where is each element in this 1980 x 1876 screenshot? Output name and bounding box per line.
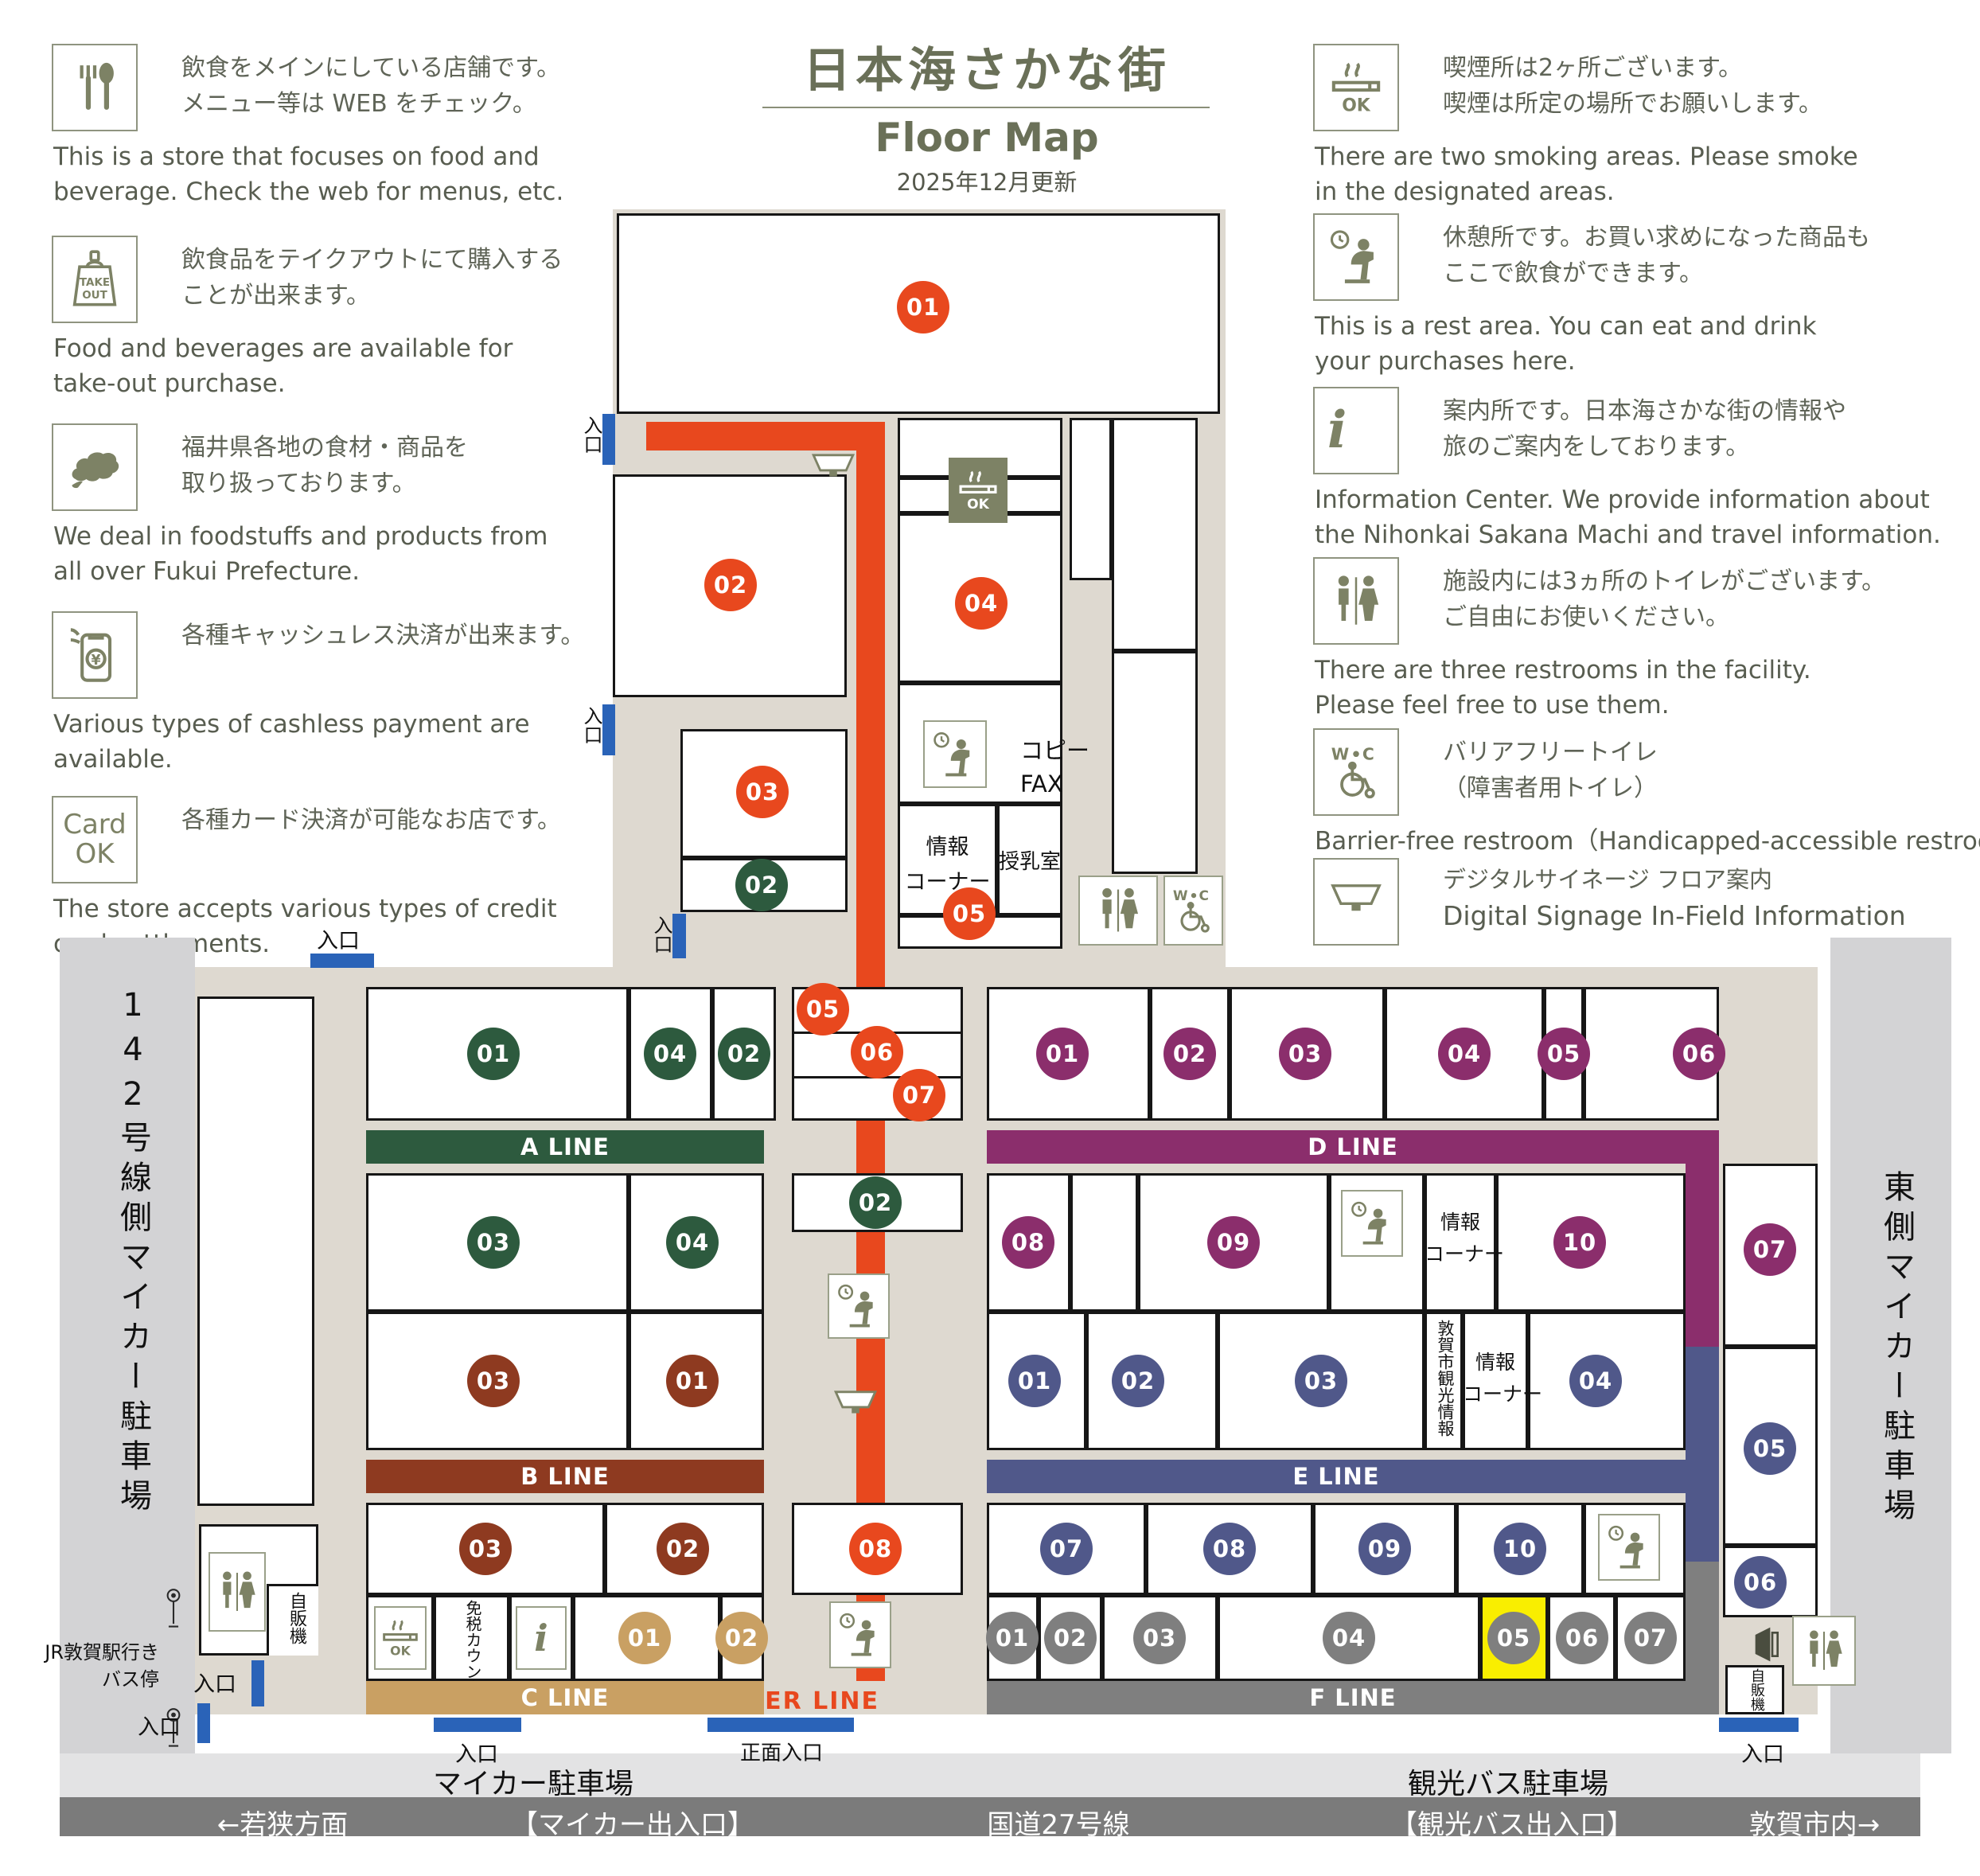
smoking-icon: OK xyxy=(1313,44,1399,131)
info-corner-label: 情報 xyxy=(1425,1207,1496,1235)
stall-center-06: 06 xyxy=(851,1026,903,1078)
legend-text-jp: 飲食品をテイクアウトにて購入することが出来ます。 xyxy=(181,242,563,314)
d-line-band xyxy=(1686,1164,1719,1347)
svg-text:OK: OK xyxy=(390,1643,411,1658)
svg-text:C: C xyxy=(1199,887,1208,903)
stall-D-05: 05 xyxy=(1538,1028,1590,1080)
stall-center-08: 08 xyxy=(849,1523,902,1575)
entrance-bar xyxy=(310,954,374,968)
road-bus-gate-label: 【観光バス出入口】 xyxy=(1353,1803,1671,1842)
vending-label: 自販機 xyxy=(283,1592,309,1644)
stall-center-01: 01 xyxy=(897,281,949,333)
wc-icon: WC xyxy=(1313,728,1399,816)
legend-text-en: Food and beverages are available fortake… xyxy=(53,331,513,401)
stall-E-03: 03 xyxy=(1295,1355,1347,1407)
legend-text-jp: 各種カード決済が可能なお店です。 xyxy=(181,802,561,838)
entrance-label: 入口 xyxy=(455,1737,498,1768)
page-title: 日本海さかな街 xyxy=(760,32,1214,101)
svg-text:¥: ¥ xyxy=(92,653,101,669)
stall-D-03: 03 xyxy=(1279,1028,1331,1080)
stall-A-02: 02 xyxy=(849,1176,902,1229)
legend-text-en: There are two smoking areas. Please smok… xyxy=(1315,139,1858,209)
stall-A-02: 02 xyxy=(718,1028,770,1080)
stall-C-01: 01 xyxy=(618,1612,671,1664)
bus-stop-icon xyxy=(163,1588,184,1629)
fork-spoon-icon xyxy=(52,44,138,131)
stall-center-02: 02 xyxy=(704,559,757,611)
stall-C-02: 02 xyxy=(715,1612,768,1664)
line-banner-F: F LINE xyxy=(987,1681,1719,1714)
svg-text:W: W xyxy=(1172,887,1187,903)
stall-F-01: 01 xyxy=(986,1612,1039,1664)
svg-text:C: C xyxy=(1362,744,1374,763)
stall-F-07: 07 xyxy=(1624,1612,1677,1664)
legend-text-jp: 飲食をメインにしている店舗です。メニュー等は WEB をチェック。 xyxy=(181,50,560,122)
legend-text-jp: バリアフリートイレ（障害者用トイレ） xyxy=(1443,735,1658,806)
line-banner-E: E LINE xyxy=(987,1460,1686,1493)
stall-A-02: 02 xyxy=(735,859,788,911)
info-corner-label: 情報 xyxy=(1463,1347,1528,1375)
card-ok-icon: CardOK xyxy=(52,796,138,883)
center-line-path-horizontal xyxy=(646,422,885,450)
entrance-label: 入口 xyxy=(1741,1737,1784,1768)
stall-E-06: 06 xyxy=(1734,1556,1787,1609)
stall-F-06: 06 xyxy=(1556,1612,1608,1664)
stall-center-07: 07 xyxy=(893,1069,945,1121)
main-entrance-bar xyxy=(707,1718,854,1732)
legend-text-jp: 休憩所です。お買い求めになった商品もここで飲食ができます。 xyxy=(1443,220,1870,291)
information-icon: i xyxy=(516,1606,567,1670)
smoking-area-icon: OK xyxy=(374,1606,427,1670)
legend-text-en: This is a rest area. You can eat and dri… xyxy=(1315,309,1817,379)
parking-mycar-label: マイカー駐車場 xyxy=(374,1761,692,1802)
stall-F-05: 05 xyxy=(1487,1612,1540,1664)
road-route27-label: 国道27号線 xyxy=(939,1803,1178,1842)
stall-D-01: 01 xyxy=(1036,1028,1089,1080)
main-entrance-label: 正面入口 xyxy=(702,1737,861,1766)
stall-B-02: 02 xyxy=(657,1523,709,1575)
rest-area-icon xyxy=(923,720,987,788)
stall-center-05: 05 xyxy=(943,887,996,940)
legend-text-jp: 各種キャッシュレス決済が出来ます。 xyxy=(181,618,584,653)
info-icon: i xyxy=(1313,387,1399,474)
legend-text-jp: デジタルサイネージ フロア案内 xyxy=(1443,863,1772,898)
road-tsuruga-label: 敦賀市内→ xyxy=(1695,1803,1934,1842)
stall-D-02: 02 xyxy=(1163,1028,1216,1080)
info-corner-label: コーナー xyxy=(1425,1238,1496,1267)
stall-A-01: 01 xyxy=(467,1028,520,1080)
restroom-icon xyxy=(209,1552,266,1632)
svg-text:OUT: OUT xyxy=(82,290,107,302)
updated-date: 2025年12月更新 xyxy=(760,164,1214,197)
svg-text:OK: OK xyxy=(1342,96,1371,116)
stall-center-04: 04 xyxy=(955,577,1008,630)
stall-D-07: 07 xyxy=(1744,1223,1796,1276)
restroom-icon xyxy=(1078,876,1158,946)
rest-area-icon xyxy=(1341,1190,1403,1257)
page-subtitle: Floor Map xyxy=(760,115,1214,161)
restroom-icon xyxy=(1313,557,1399,645)
f-line-band xyxy=(1686,1562,1719,1681)
restroom-icon xyxy=(1792,1616,1856,1686)
stall-E-07: 07 xyxy=(1040,1523,1093,1575)
tsuruga-info-label: 敦賀市観光情報 xyxy=(1433,1320,1457,1437)
entrance-label: 入口 xyxy=(317,923,360,954)
stall-E-09: 09 xyxy=(1358,1523,1411,1575)
parking-strip-right-label: 東側マイカー駐車場 xyxy=(1873,1170,1920,1528)
legend-text-en: Digital Signage In-Field Information xyxy=(1443,898,1906,935)
stall-A-04: 04 xyxy=(644,1028,696,1080)
entrance-label: 入口 xyxy=(648,915,676,954)
nursing-label: 授乳室 xyxy=(997,845,1062,875)
info-corner-label: コーナー xyxy=(1463,1379,1528,1407)
digital-signage-icon xyxy=(804,452,863,486)
fukui-map-icon xyxy=(52,423,138,511)
stall-E-01: 01 xyxy=(1008,1355,1061,1407)
entrance-bar xyxy=(197,1703,210,1743)
svg-text:W: W xyxy=(1331,744,1349,763)
legend-text-en: Barrier-free restroom（Handicapped-access… xyxy=(1315,824,1980,859)
rest-area-icon xyxy=(828,1273,890,1339)
bus-stop-label: バス停 xyxy=(16,1663,159,1691)
stall-D-09: 09 xyxy=(1207,1216,1260,1269)
signage-icon xyxy=(1313,858,1399,946)
digital-signage-icon xyxy=(826,1389,885,1422)
rest-icon xyxy=(1313,213,1399,301)
entrance-label: 入口 xyxy=(578,706,606,744)
stall-E-10: 10 xyxy=(1494,1523,1546,1575)
entrance-label: 入口 xyxy=(578,415,606,454)
door-icon xyxy=(1749,1625,1783,1663)
accessible-restroom-icon: WC xyxy=(1163,876,1223,946)
bus-stop-label: JR敦賀駅行き xyxy=(16,1636,159,1664)
entrance-label: 入口 xyxy=(138,1710,181,1741)
stall-center-05: 05 xyxy=(797,983,849,1036)
stall-center-03: 03 xyxy=(736,766,789,818)
rest-area-icon xyxy=(1598,1514,1660,1581)
stall-D-06: 06 xyxy=(1673,1028,1725,1080)
line-banner-B: B LINE xyxy=(366,1460,764,1493)
legend-text-en: We deal in foodstuffs and products froma… xyxy=(53,519,548,589)
legend-text-en: Various types of cashless payment areava… xyxy=(53,707,530,777)
road-wakasa-label: ←若狭方面 xyxy=(163,1803,402,1842)
stall-cell xyxy=(1070,1173,1138,1312)
stall-E-04: 04 xyxy=(1569,1355,1622,1407)
stall-E-02: 02 xyxy=(1112,1355,1164,1407)
stall-E-08: 08 xyxy=(1203,1523,1256,1575)
room xyxy=(1070,418,1112,580)
stall-F-04: 04 xyxy=(1323,1612,1375,1664)
stall-B-01: 01 xyxy=(666,1355,719,1407)
legend-text-jp: 喫煙所は2ヶ所ございます。喫煙は所定の場所でお願いします。 xyxy=(1443,50,1822,122)
e-line-band xyxy=(1686,1347,1719,1562)
rest-area-icon xyxy=(829,1601,891,1668)
legend-text-en: Information Center. We provide informati… xyxy=(1315,482,1941,552)
parking-bus-label: 観光バス駐車場 xyxy=(1349,1761,1667,1802)
road-mycar-gate-label: 【マイカー出入口】 xyxy=(474,1803,792,1842)
stall-B-03: 03 xyxy=(459,1523,512,1575)
parking-strip-left-label: 142号線側マイカー駐車場 xyxy=(110,987,156,1519)
smoking-area-icon: OK xyxy=(949,458,1008,523)
stall-D-10: 10 xyxy=(1553,1216,1606,1269)
svg-text:OK: OK xyxy=(967,497,989,513)
entrance-bar xyxy=(434,1718,521,1732)
legend-text-en: There are three restrooms in the facilit… xyxy=(1315,653,1811,723)
stall-E-05: 05 xyxy=(1744,1422,1796,1475)
room xyxy=(1112,651,1198,874)
entrance-bar xyxy=(1719,1718,1799,1732)
legend-text-jp: 案内所です。日本海さかな街の情報や旅のご案内をしております。 xyxy=(1443,393,1846,465)
vending-label: 自販機 xyxy=(1746,1668,1767,1711)
stall-B-03: 03 xyxy=(467,1355,520,1407)
line-banner-C: C LINE xyxy=(366,1681,764,1714)
line-banner-D: D LINE xyxy=(987,1130,1719,1164)
room xyxy=(197,997,314,1506)
legend-text-jp: 施設内には3ヵ所のトイレがございます。ご自由にお使いください。 xyxy=(1443,564,1885,635)
takeout-icon: TAKEOUT xyxy=(52,236,138,323)
info-corner-label: 情報 xyxy=(898,829,997,860)
entrance-label: 入口 xyxy=(193,1667,236,1698)
entrance-bar xyxy=(251,1660,264,1706)
room xyxy=(1112,418,1198,651)
legend-text-jp: 福井県各地の食材・商品を取り扱っております。 xyxy=(181,430,468,501)
cashless-icon: ¥ xyxy=(52,611,138,699)
stall-A-03: 03 xyxy=(467,1216,520,1269)
stall-D-04: 04 xyxy=(1438,1028,1491,1080)
fax-label: FAX xyxy=(1020,770,1063,798)
line-banner-A: A LINE xyxy=(366,1130,764,1164)
stall-A-04: 04 xyxy=(666,1216,719,1269)
floor-map-page: 日本海さかな街 Floor Map 2025年12月更新 飲食をメインにしている… xyxy=(0,0,1980,1876)
title-divider xyxy=(762,107,1210,108)
svg-text:TAKE: TAKE xyxy=(80,277,110,289)
stall-F-02: 02 xyxy=(1044,1612,1097,1664)
stall-D-08: 08 xyxy=(1002,1216,1054,1269)
legend-text-en: This is a store that focuses on food and… xyxy=(53,139,563,209)
copy-label: コピー xyxy=(1020,732,1089,766)
stall-F-03: 03 xyxy=(1133,1612,1186,1664)
